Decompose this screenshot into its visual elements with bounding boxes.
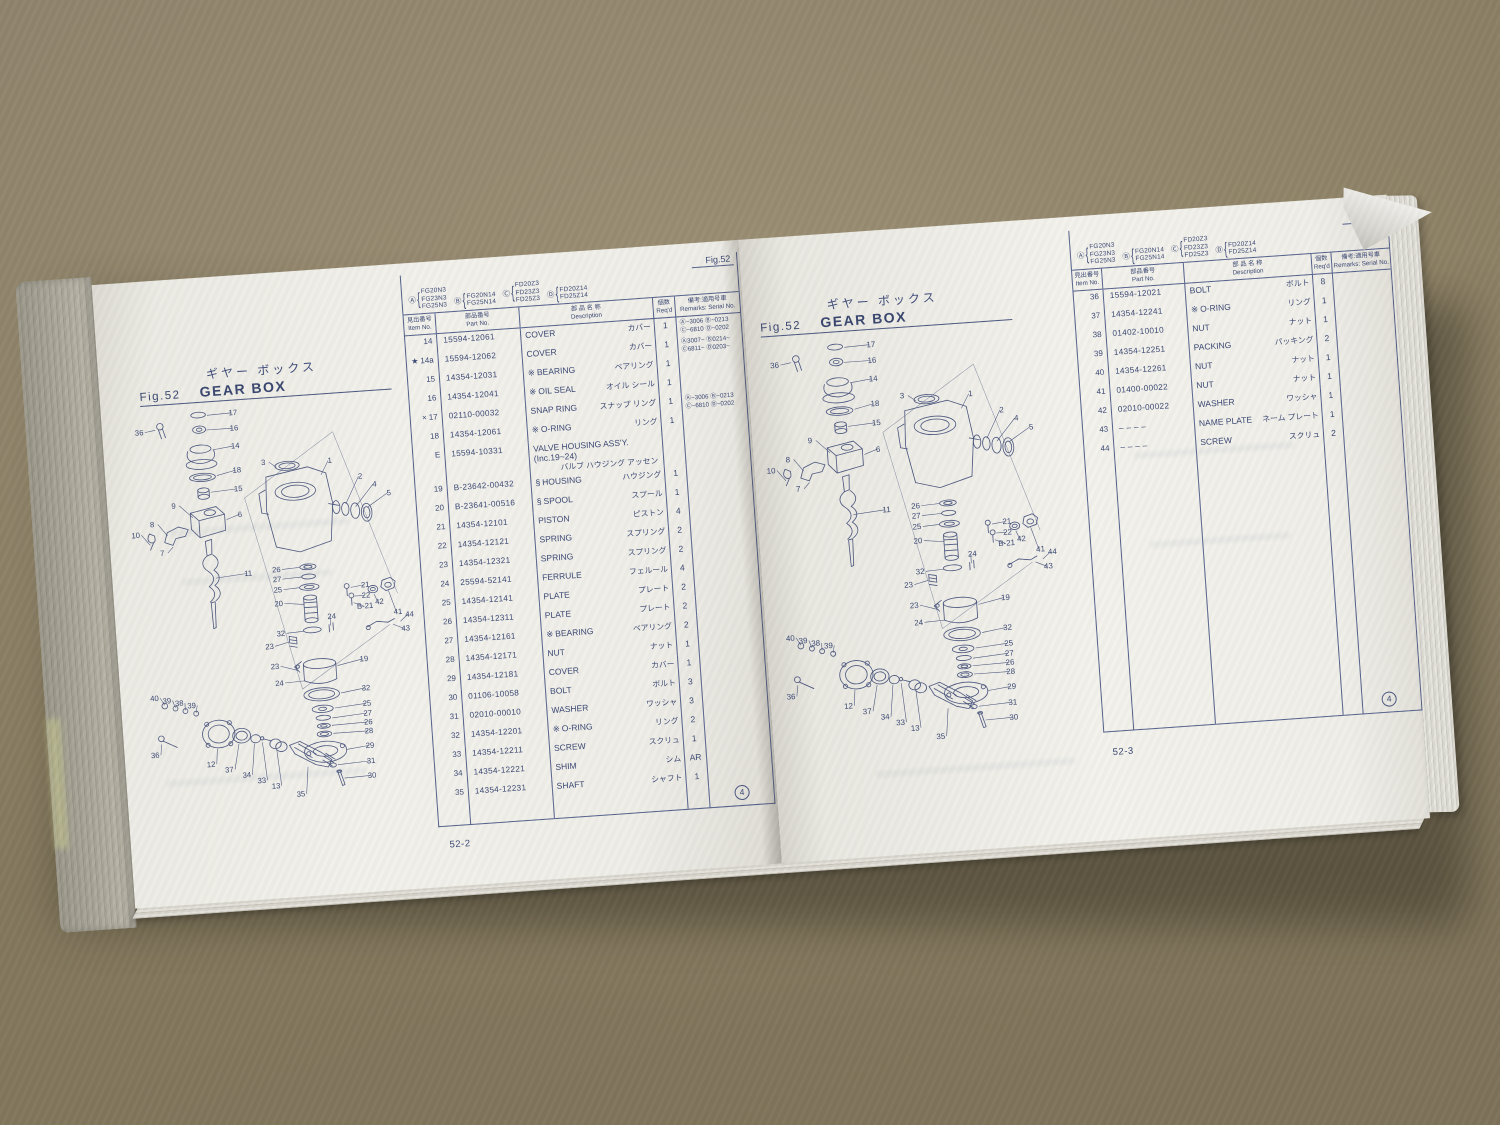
part-callout-number: 15 [872, 418, 882, 428]
qty-cell: 1 [660, 393, 683, 413]
part-callout-number: 36 [151, 751, 160, 761]
qty-cell: AR [685, 748, 708, 768]
part-callout-number: 14 [231, 441, 241, 451]
part-callout-number: 22 [361, 590, 370, 600]
item-no-cell: 31 [431, 708, 464, 729]
model-group: Ⓓ{FD20Z14FD25Z14 [1215, 239, 1257, 257]
part-callout-number: 16 [867, 356, 877, 366]
part-callout-number: 28 [364, 726, 373, 736]
column-header: 見出番号Item No. [404, 313, 437, 335]
part-callout-number: 39 [162, 696, 171, 706]
item-no-cell: 33 [434, 746, 467, 767]
exploded-diagram-right: 3617161418156981071131245262725203223242… [750, 310, 1079, 763]
exploded-view-drawing: 3617161418156981071131245262725203223242… [750, 310, 1079, 763]
part-callout-number: 35 [296, 789, 305, 799]
part-callout-number: 37 [225, 765, 234, 775]
qty-cell: 2 [673, 578, 696, 598]
part-callout-number: 24 [327, 611, 337, 621]
item-no-cell: 24 [422, 576, 455, 597]
part-callout-number: 27 [272, 575, 281, 585]
item-no-cell: 16 [409, 391, 442, 412]
part-callout-number: 43 [401, 623, 410, 633]
part-callout-number: 9 [807, 436, 813, 445]
qty-cell: 1 [1314, 292, 1335, 312]
part-callout-number: 19 [359, 654, 368, 664]
part-callout-number: 13 [911, 723, 921, 733]
item-no-cell: 28 [427, 651, 460, 672]
item-no-cell: 42 [1081, 403, 1112, 424]
qty-cell: 2 [1323, 425, 1344, 445]
part-callout-number: 30 [367, 770, 376, 780]
qty-cell: 1 [658, 374, 681, 394]
column-header: 個数Req'd [653, 296, 676, 317]
item-no-cell: ★14a [406, 353, 439, 374]
part-callout-number: 12 [207, 760, 216, 770]
part-callout-number: 10 [766, 466, 776, 476]
part-callout-number: 27 [363, 708, 372, 718]
item-no-cell: 15 [408, 372, 441, 393]
part-callout-number: 43 [1044, 561, 1054, 571]
parts-table-right: Ⓐ{FG20N3FG23N3FG25N3Ⓑ{FG20N14FG25N14Ⓒ{FD… [1068, 209, 1422, 733]
part-callout-number: 4 [1014, 413, 1020, 422]
part-callout-number: 24 [968, 549, 978, 559]
part-callout-number: 21 [1002, 517, 1012, 527]
empty-cell [470, 797, 555, 824]
part-callout-number: 1 [327, 456, 332, 465]
part-callout-number: 25 [273, 585, 282, 595]
footer-page-number: 52-2 [449, 838, 471, 850]
model-group: Ⓑ{FG20N14FG25N14 [1122, 246, 1165, 264]
part-callout-number: 5 [386, 488, 391, 497]
item-no-cell: 41 [1080, 384, 1111, 405]
part-callout-number: 36 [786, 692, 796, 702]
part-callout-number: 42 [375, 597, 384, 607]
qty-cell: 2 [1317, 330, 1338, 350]
part-callout-number: 42 [1017, 534, 1026, 544]
part-callout-number: 20 [913, 536, 923, 546]
photo-of-parts-catalog: ギヤー ボックス Fig.52 GEAR BOX [0, 0, 1500, 1125]
part-callout-number: 1 [968, 389, 974, 398]
item-no-cell: 19 [415, 481, 448, 502]
item-no-cell: 26 [425, 613, 458, 634]
part-callout-number: 29 [1007, 682, 1017, 692]
part-callout-number: 28 [1006, 667, 1016, 677]
item-no-cell: 21 [418, 519, 451, 540]
qty-cell: 3 [679, 673, 702, 693]
part-callout-number: 39 [798, 636, 808, 646]
part-callout-number: 26 [911, 501, 921, 511]
part-callout-number: 4 [372, 479, 378, 488]
parts-table-body: 3615594-12021BOLTボルト83714354-12241※O-RIN… [1073, 269, 1421, 732]
part-callout-number: 14 [869, 374, 879, 384]
item-no-cell: 27 [426, 632, 459, 653]
part-callout-number: 30 [1009, 712, 1019, 722]
part-callout-number: 6 [238, 510, 243, 519]
part-callout-number: 11 [882, 505, 891, 515]
part-callout-number: 17 [866, 340, 875, 350]
qty-cell: 1 [654, 317, 677, 337]
qty-cell: 1 [1320, 368, 1341, 388]
part-callout-number: 11 [244, 569, 253, 579]
part-callout-number: 26 [272, 565, 281, 575]
part-callout-number: 6 [876, 445, 882, 454]
qty-cell: 1 [1318, 349, 1339, 369]
part-callout-number: 23 [270, 662, 279, 672]
qty-cell: 2 [674, 597, 697, 617]
part-callout-number: 23 [265, 642, 274, 652]
part-callout-number: 24 [914, 618, 924, 628]
model-group: Ⓓ{FD20Z14FD25Z14 [546, 284, 588, 302]
part-callout-number: 39 [187, 701, 196, 711]
exploded-diagram-left: 3617161418156981071131245262725203223242… [116, 379, 437, 820]
part-callout-number: B-21 [357, 601, 374, 611]
model-group: Ⓑ{FG20N14FG25N14 [453, 291, 496, 309]
qty-cell: 1 [1316, 311, 1337, 331]
empty-cell [687, 786, 710, 808]
part-callout-number: 8 [150, 520, 155, 529]
qty-cell [662, 431, 686, 466]
qty-cell: 2 [669, 521, 692, 541]
qty-cell: 1 [678, 654, 701, 674]
item-no-cell: 25 [423, 595, 456, 616]
part-callout-number: 31 [1008, 697, 1018, 707]
part-callout-number: 27 [1005, 648, 1014, 658]
qty-cell: 1 [665, 464, 688, 484]
item-no-cell: 30 [430, 689, 463, 710]
qty-cell: 1 [683, 729, 706, 749]
empty-rows-area [1085, 440, 1421, 732]
left-page: ギヤー ボックス Fig.52 GEAR BOX [92, 240, 782, 909]
part-callout-number: 40 [786, 634, 796, 644]
qty-cell: 1 [666, 483, 689, 503]
part-callout-number: 25 [1004, 638, 1014, 648]
part-callout-number: 13 [271, 781, 280, 791]
parts-table-left: Ⓐ{FG20N3FG23N3FG25N3Ⓑ{FG20N14FG25N14Ⓒ{FD… [400, 252, 776, 827]
column-header: 見出番号Item No. [1072, 269, 1103, 291]
part-callout-number: 44 [1048, 547, 1058, 557]
empty-cell [438, 803, 471, 826]
part-callout-number: 31 [366, 756, 375, 766]
item-no-cell: 44 [1084, 441, 1115, 462]
part-callout-number: 23 [904, 580, 914, 590]
item-no-cell: 23 [421, 557, 454, 578]
qty-cell: 1 [657, 355, 680, 375]
model-group: Ⓒ{FD20Z3FD23Z3FD25Z3 [502, 280, 541, 306]
part-callout-number: 17 [228, 408, 237, 418]
part-callout-number: B-21 [998, 538, 1016, 548]
item-no-cell: 14 [405, 334, 438, 355]
part-callout-number: 27 [912, 511, 921, 521]
item-no-cell: 29 [428, 670, 461, 691]
parts-table-body: 1415594-12061COVERカバー1Ⓐ~3006 Ⓑ~0213Ⓒ~681… [405, 312, 774, 826]
part-callout-number: 32 [276, 629, 285, 639]
part-callout-number: 24 [275, 679, 285, 689]
part-callout-number: 32 [1003, 623, 1012, 633]
item-no-cell: 39 [1077, 346, 1108, 367]
part-callout-number: 19 [1001, 593, 1011, 603]
item-no-cell: 18 [412, 428, 445, 449]
exploded-view-drawing: 3617161418156981071131245262725203223242… [116, 379, 437, 820]
qty-cell: 1 [656, 336, 679, 356]
item-no-cell: 34 [435, 765, 468, 786]
part-callout-number: 26 [1005, 657, 1015, 667]
part-callout-number: 32 [915, 567, 924, 577]
part-callout-number: 2 [999, 405, 1004, 414]
item-no-cell: 43 [1083, 422, 1114, 443]
part-callout-number: 9 [171, 502, 176, 511]
part-callout-number: 39 [824, 641, 834, 651]
part-callout-number: 44 [405, 609, 415, 619]
part-callout-number: 20 [274, 599, 283, 609]
part-callout-number: 36 [135, 428, 144, 438]
item-no-cell: 38 [1076, 327, 1107, 348]
open-parts-catalog-book: ギヤー ボックス Fig.52 GEAR BOX [16, 191, 1480, 917]
qty-cell: 3 [681, 692, 704, 712]
column-header: 備考:適用号車Remarks: Serial No. [1331, 249, 1390, 272]
model-group: Ⓐ{FG20N3FG23N3FG25N3 [408, 286, 448, 312]
item-no-cell: 37 [1075, 308, 1106, 329]
qty-cell: 2 [682, 710, 705, 730]
part-callout-number: 18 [232, 465, 241, 475]
qty-cell: 4 [667, 502, 690, 522]
part-callout-number: 38 [175, 699, 184, 709]
part-callout-number: 3 [899, 391, 905, 400]
part-callout-number: 38 [811, 638, 821, 648]
part-callout-number: 5 [1029, 422, 1035, 431]
item-no-cell: 40 [1079, 365, 1110, 386]
qty-cell: 1 [1321, 387, 1342, 407]
empty-cell [1197, 445, 1344, 724]
part-callout-number: 16 [229, 423, 238, 433]
part-callout-number: 21 [361, 580, 370, 590]
qty-cell: 1 [1322, 406, 1343, 426]
part-callout-number: 32 [361, 683, 370, 693]
part-callout-number: 3 [261, 458, 266, 467]
part-callout-number: 7 [796, 485, 801, 494]
part-callout-number: 37 [863, 707, 872, 717]
qty-cell: 1 [677, 635, 700, 655]
footer-page-number: 52-3 [1112, 746, 1134, 758]
qty-cell: 4 [671, 559, 694, 579]
part-callout-number: 18 [870, 399, 880, 409]
part-callout-number: 12 [844, 701, 853, 711]
item-no-cell: E [413, 447, 447, 483]
qty-cell: 1 [661, 412, 684, 432]
item-no-cell: 20 [417, 500, 450, 521]
item-no-cell: 32 [432, 727, 465, 748]
part-callout-number: 15 [234, 484, 243, 494]
part-callout-number: 7 [160, 549, 165, 558]
part-callout-number: 26 [364, 717, 373, 727]
part-callout-number: 40 [150, 694, 159, 704]
part-callout-number: 22 [1003, 527, 1012, 537]
part-callout-number: 25 [912, 522, 922, 532]
qty-cell: 2 [675, 616, 698, 636]
part-callout-number: 8 [785, 455, 791, 464]
part-callout-number: 10 [131, 531, 140, 541]
part-callout-number: 25 [362, 698, 371, 708]
item-no-cell: 35 [436, 784, 469, 805]
part-callout-number: 41 [1036, 544, 1046, 554]
part-callout-number: 33 [257, 776, 266, 786]
part-callout-number: 34 [242, 770, 252, 780]
part-callout-number: 34 [881, 712, 891, 722]
part-callout-number: 2 [358, 471, 363, 480]
model-group: Ⓐ{FG20N3FG23N3FG25N3 [1076, 242, 1116, 268]
part-callout-number: 35 [936, 732, 946, 742]
part-callout-number: 23 [909, 601, 919, 611]
right-page: ギヤー ボックス Fig.52 GEAR BOX [738, 195, 1430, 864]
part-callout-number: 41 [393, 607, 402, 617]
item-no-cell: 22 [419, 538, 452, 559]
qty-cell: 8 [1313, 273, 1334, 293]
item-no-cell: ×17 [410, 409, 443, 430]
part-callout-number: 36 [770, 361, 780, 371]
part-callout-number: 29 [365, 741, 374, 751]
qty-cell: 2 [670, 540, 693, 560]
part-callout-number: 33 [896, 718, 906, 728]
qty-cell: 1 [686, 767, 709, 787]
item-no-cell: 36 [1073, 289, 1104, 310]
column-header: 個数Req'd [1311, 253, 1332, 274]
model-group: Ⓒ{FD20Z3FD23Z3FD25Z3 [1170, 235, 1209, 261]
